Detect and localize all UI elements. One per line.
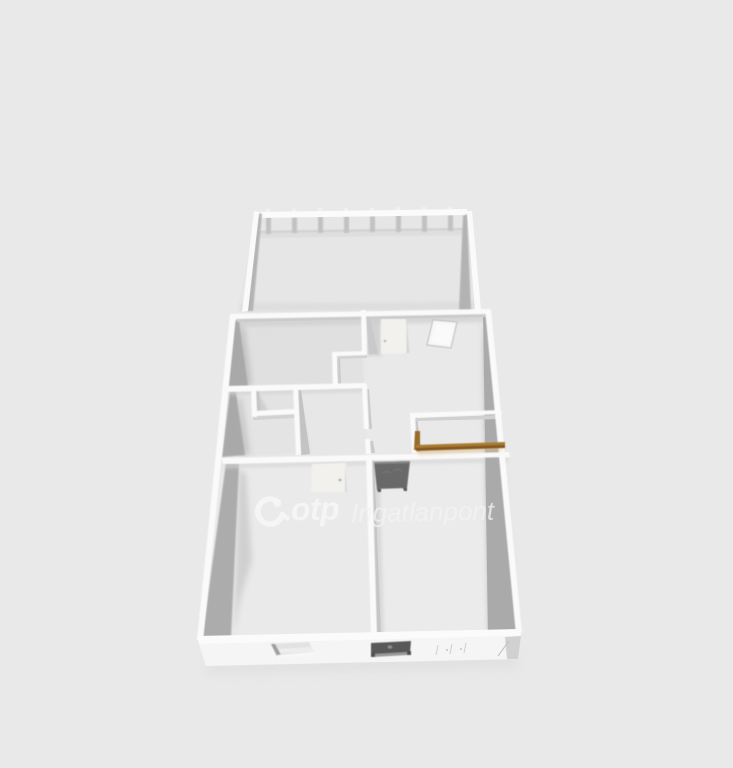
svg-text:otp: otp [291,490,340,527]
svg-text:Ingatlanpont: Ingatlanpont [351,496,496,529]
